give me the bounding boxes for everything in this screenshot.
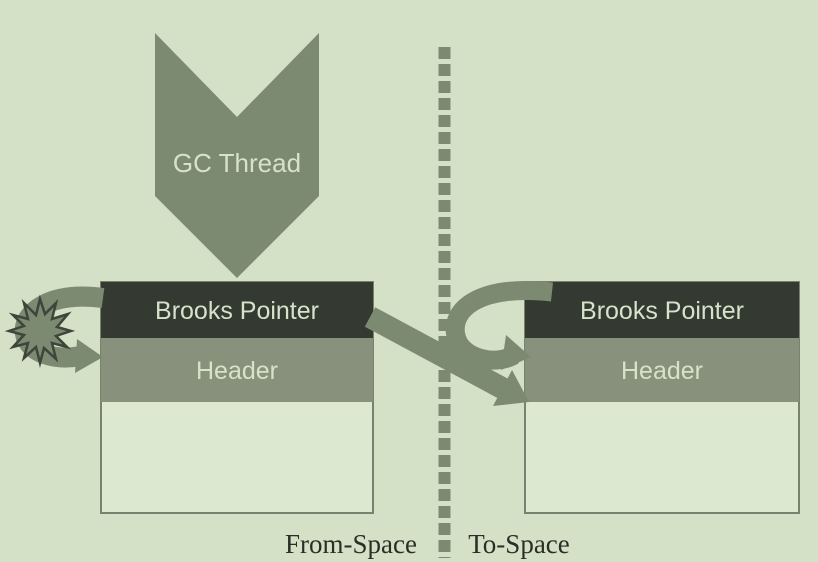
- gc-thread-label: GC Thread: [173, 148, 301, 178]
- to-space-object: Brooks Pointer Header: [525, 282, 799, 513]
- from-space-label: From-Space: [285, 529, 417, 559]
- brooks-pointer-diagram: GC Thread Brooks Pointer Header Brooks P…: [0, 0, 818, 562]
- brooks-pointer-label: Brooks Pointer: [155, 297, 319, 325]
- to-space-label: To-Space: [468, 529, 570, 559]
- header-label: Header: [196, 357, 278, 385]
- slide: GC Thread Brooks Pointer Header Brooks P…: [0, 0, 818, 562]
- brooks-pointer-label: Brooks Pointer: [580, 297, 744, 325]
- header-label: Header: [621, 357, 703, 385]
- from-space-object: Brooks Pointer Header: [101, 282, 373, 513]
